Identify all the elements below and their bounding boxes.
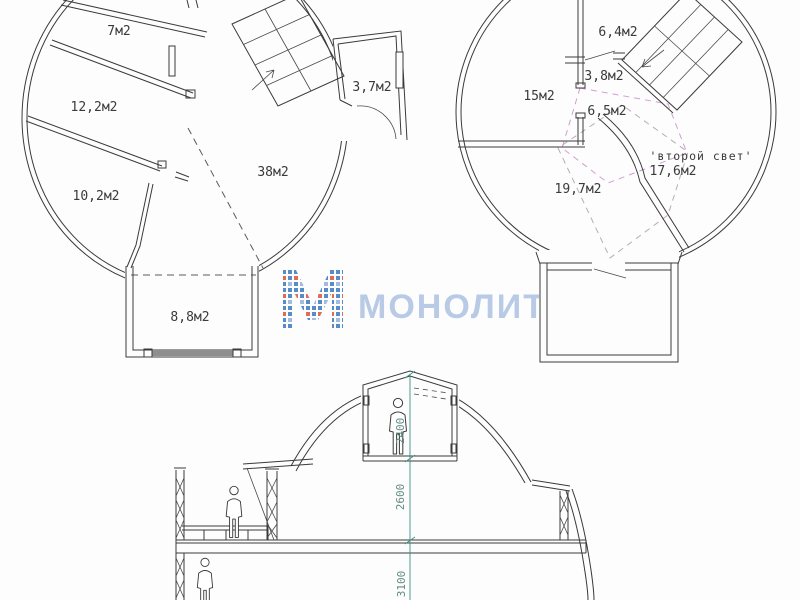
dim-label-2400: 2400 [394,418,407,445]
room-label-38b: 3,8м2 [584,69,623,84]
x-bracing-basement [176,558,184,598]
floor1-staircase [232,0,344,106]
window-sill-fill [152,350,233,356]
person-figure-basement [197,558,212,600]
wall-room7-top [61,0,207,37]
floorplan-drawing: 7м2 12,2м2 10,2м2 38м2 3,7м2 8,8м2 МОНОЛ… [0,0,800,600]
room-label-176: 17,6м2 [650,164,697,179]
wall-room102-hall [127,183,153,268]
watermark: МОНОЛИТ [283,270,546,330]
room-label-122: 12,2м2 [71,100,118,115]
canopy-strut [247,468,274,540]
room-label-7: 7м2 [107,24,130,39]
wall-vertical-15m [578,0,583,145]
room-label-64: 6,4м2 [598,25,637,40]
lower-curved-wall [566,489,594,600]
wall-horizontal-15m [458,141,585,147]
floor1-inner-wall [27,0,343,285]
canopy [243,459,313,469]
room-label-15: 15м2 [523,89,554,104]
wall-curved-197-176 [598,114,689,252]
door-leaf-line [585,51,615,60]
terrace-railing [182,526,268,540]
dim-label-3100: 3100 [395,571,408,598]
section-view: 2400 2600 3100 [174,369,594,600]
window-symbol [396,52,403,88]
floor1-plan: 7м2 12,2м2 10,2м2 38м2 3,7м2 8,8м2 [22,0,408,358]
second-light-note: 'второй свет' [649,149,752,163]
floor1-outer-wall [22,0,348,290]
stair-up-arrow-icon [252,70,274,90]
wall-stubs-38m [565,53,625,63]
room-label-37: 3,7м2 [352,80,391,95]
floor-slab [176,540,586,553]
x-bracing-right [560,495,568,535]
monolit-logo-accent [283,270,343,330]
room-label-88: 8,8м2 [170,310,209,325]
room-label-102: 10,2м2 [73,189,120,204]
corridor-dashed-line [188,128,263,268]
right-eave [532,480,570,491]
wall-room122-room102 [26,116,189,181]
room-label-38: 38м2 [257,165,288,180]
x-bracing-left [176,478,184,538]
room-label-197: 19,7м2 [555,182,602,197]
watermark-brand-text: МОНОЛИТ [358,288,546,326]
wall-room7-room122 [50,40,193,98]
floor2-staircase [618,0,742,113]
stair-down-arrow-icon [642,50,664,67]
dim-label-2600: 2600 [394,484,407,511]
drawing-canvas: 7м2 12,2м2 10,2м2 38м2 3,7м2 8,8м2 МОНОЛ… [0,0,800,600]
room-label-65-pink: 6,5м2 [587,104,626,119]
